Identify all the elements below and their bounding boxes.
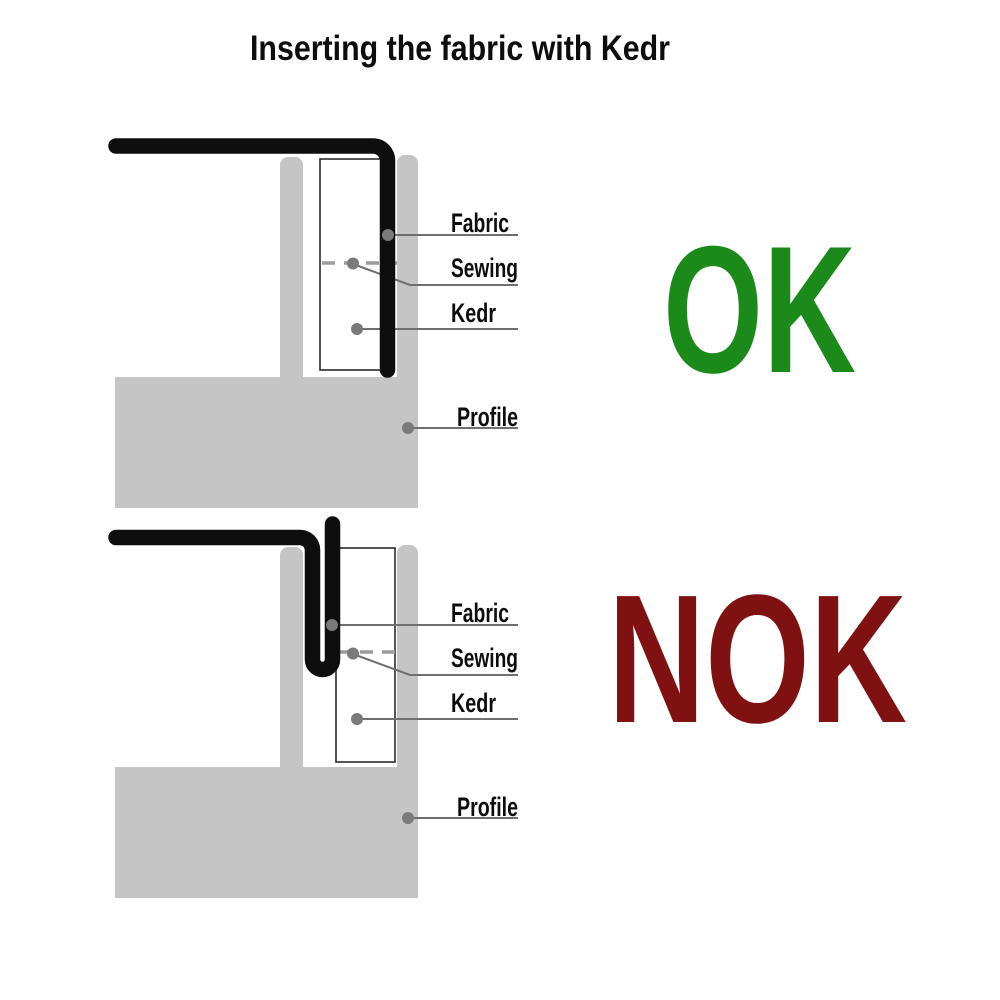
ok-profile-label: Profile [457, 402, 518, 432]
nok-profile-left-wall [280, 547, 303, 775]
page-title: Inserting the fabric with Kedr [250, 29, 670, 68]
nok-fabric-marker-dot [326, 619, 338, 631]
ok-kedr-marker-dot [351, 323, 363, 335]
ok-fabric-label: Fabric [451, 208, 509, 238]
ok-fabric-marker-dot [382, 229, 394, 241]
nok-kedr-rect [336, 548, 395, 762]
ok-profile-marker-dot [402, 422, 414, 434]
nok-kedr-label: Kedr [451, 688, 496, 718]
nok-fabric-label: Fabric [451, 598, 509, 628]
ok-verdict-text: OK [663, 209, 856, 411]
nok-verdict-text: NOK [608, 556, 907, 761]
nok-diagram: Fabric Sewing Kedr Profile NOK [115, 524, 907, 898]
diagram-canvas: Inserting the fabric with Kedr Fabri [0, 0, 1000, 1000]
fabric-kedr-diagram: Inserting the fabric with Kedr Fabri [0, 0, 1000, 1000]
ok-profile-base [115, 377, 418, 508]
nok-sewing-label: Sewing [451, 643, 518, 673]
ok-kedr-label: Kedr [451, 298, 496, 328]
nok-sewing-marker-dot [347, 648, 359, 660]
nok-profile-base [115, 767, 418, 898]
ok-profile-left-wall [280, 157, 303, 385]
nok-profile-marker-dot [402, 812, 414, 824]
ok-diagram: Fabric Sewing Kedr Profile OK [115, 146, 856, 508]
ok-sewing-label: Sewing [451, 253, 518, 283]
ok-profile-right-wall [397, 155, 418, 387]
nok-kedr-marker-dot [351, 713, 363, 725]
ok-sewing-marker-dot [347, 258, 359, 270]
nok-profile-right-wall [397, 545, 418, 777]
nok-profile-label: Profile [457, 792, 518, 822]
